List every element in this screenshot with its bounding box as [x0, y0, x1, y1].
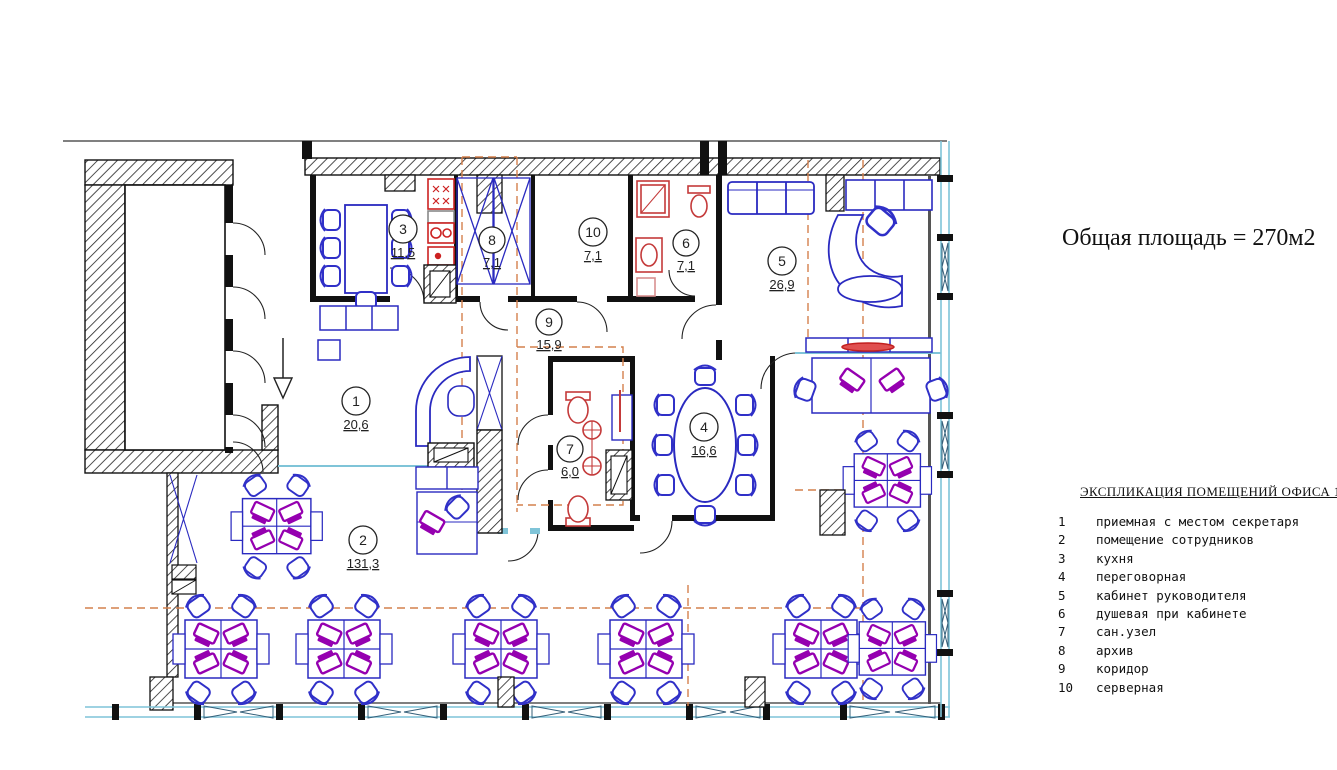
legend-item-name: переговорная	[1096, 568, 1186, 586]
workstation-cluster	[848, 595, 936, 702]
legend-item: 8 архив	[1058, 642, 1330, 660]
stair-door-arcs	[233, 223, 265, 447]
legend-item-number: 2	[1058, 531, 1096, 549]
workstation-cluster	[173, 591, 269, 707]
legend-item-name: кабинет руководителя	[1096, 587, 1247, 605]
bottom-window-band	[85, 704, 950, 720]
legend-item: 10 серверная	[1058, 679, 1330, 697]
workstation-cluster	[296, 591, 392, 707]
entrance-arrow-icon	[274, 338, 292, 398]
legend: ЭКСПЛИКАЦИЯ ПОМЕЩЕНИЙ ОФИСА 1 1 приемная…	[1058, 484, 1330, 697]
workstation-clusters	[173, 358, 951, 708]
floor-plan-sheet: 1 20,6 2 131,3 3 11,5 4 16,6 5 26,9 6 7,…	[0, 0, 1337, 770]
legend-item-number: 10	[1058, 679, 1096, 697]
svg-text:2: 2	[359, 532, 367, 548]
workstation-pair	[791, 358, 950, 413]
svg-text:10: 10	[585, 224, 601, 240]
svg-text:7,1: 7,1	[584, 248, 602, 263]
legend-item-name: приемная с местом секретаря	[1096, 513, 1299, 531]
legend-item-name: кухня	[1096, 550, 1134, 568]
room-label-4: 4 16,6	[690, 413, 718, 458]
room-kitchen	[318, 179, 456, 360]
workstation-cluster	[598, 591, 694, 707]
svg-text:11,5: 11,5	[391, 245, 415, 260]
room-label-2: 2 131,3	[347, 526, 380, 571]
legend-item-number: 4	[1058, 568, 1096, 586]
coffee-table	[838, 276, 902, 302]
legend-item: 3 кухня	[1058, 550, 1330, 568]
room-label-10: 10 7,1	[579, 218, 607, 263]
room-shower-fixtures	[636, 181, 710, 296]
svg-text:6: 6	[682, 235, 690, 251]
legend-item-name: архив	[1096, 642, 1134, 660]
legend-item-name: душевая при кабинете	[1096, 605, 1247, 623]
stairwell-block	[85, 160, 278, 473]
room-reception	[416, 356, 502, 554]
legend-item: 7 сан.узел	[1058, 623, 1330, 641]
svg-text:20,6: 20,6	[343, 417, 368, 432]
kitchen-appliances	[428, 179, 454, 265]
svg-text:6,0: 6,0	[561, 464, 579, 479]
legend-item-name: коридор	[1096, 660, 1149, 678]
legend-item: 4 переговорная	[1058, 568, 1330, 586]
svg-text:7,1: 7,1	[483, 255, 501, 270]
svg-text:7: 7	[566, 441, 574, 457]
room-label-1: 1 20,6	[342, 387, 370, 432]
kitchen-duct-shaft	[424, 265, 456, 303]
svg-text:5: 5	[778, 253, 786, 269]
legend-title: ЭКСПЛИКАЦИЯ ПОМЕЩЕНИЙ ОФИСА 1	[1080, 484, 1330, 500]
reception-workstation	[417, 492, 477, 554]
room-label-9: 9 15,9	[536, 309, 562, 352]
room-label-5: 5 26,9	[768, 247, 796, 292]
legend-item-number: 1	[1058, 513, 1096, 531]
legend-item-number: 8	[1058, 642, 1096, 660]
legend-item: 6 душевая при кабинете	[1058, 605, 1330, 623]
room-label-3: 3 11,5	[389, 215, 417, 260]
legend-item: 1 приемная с местом секретаря	[1058, 513, 1330, 531]
legend-item-number: 7	[1058, 623, 1096, 641]
svg-text:131,3: 131,3	[347, 556, 380, 571]
svg-text:15,9: 15,9	[536, 337, 561, 352]
legend-list: 1 приемная с местом секретаря 2 помещени…	[1058, 513, 1330, 697]
legend-item-number: 9	[1058, 660, 1096, 678]
legend-item: 9 коридор	[1058, 660, 1330, 678]
legend-item-number: 3	[1058, 550, 1096, 568]
exterior-top-wall	[302, 141, 940, 213]
reception-cabinets	[416, 467, 478, 489]
svg-text:26,9: 26,9	[769, 277, 794, 292]
right-window-band	[937, 141, 953, 717]
column-pier	[745, 677, 765, 707]
svg-text:7,1: 7,1	[677, 258, 695, 273]
kitchen-counter	[318, 306, 398, 360]
wardrobe	[846, 180, 932, 210]
svg-text:1: 1	[352, 393, 360, 409]
legend-item-number: 5	[1058, 587, 1096, 605]
office-cabinet-row	[806, 338, 932, 352]
column-pier	[498, 677, 514, 707]
room-label-7: 7 6,0	[557, 436, 583, 479]
svg-text:8: 8	[488, 232, 496, 248]
sofa	[728, 182, 814, 214]
legend-item-name: помещение сотрудников	[1096, 531, 1254, 549]
workstation-cluster	[231, 471, 322, 582]
total-area-title: Общая площадь = 270м2	[1062, 225, 1322, 252]
svg-text:9: 9	[545, 314, 553, 330]
column-pier	[820, 490, 845, 535]
legend-item-name: сан.узел	[1096, 623, 1156, 641]
legend-item: 5 кабинет руководителя	[1058, 587, 1330, 605]
svg-text:16,6: 16,6	[691, 443, 716, 458]
legend-item: 2 помещение сотрудников	[1058, 531, 1330, 549]
legend-item-number: 6	[1058, 605, 1096, 623]
legend-item-name: серверная	[1096, 679, 1164, 697]
svg-text:4: 4	[700, 419, 708, 435]
svg-text:3: 3	[399, 221, 407, 237]
workstation-cluster	[843, 427, 931, 534]
room-label-6: 6 7,1	[673, 230, 699, 273]
reception-shaft	[428, 443, 474, 467]
